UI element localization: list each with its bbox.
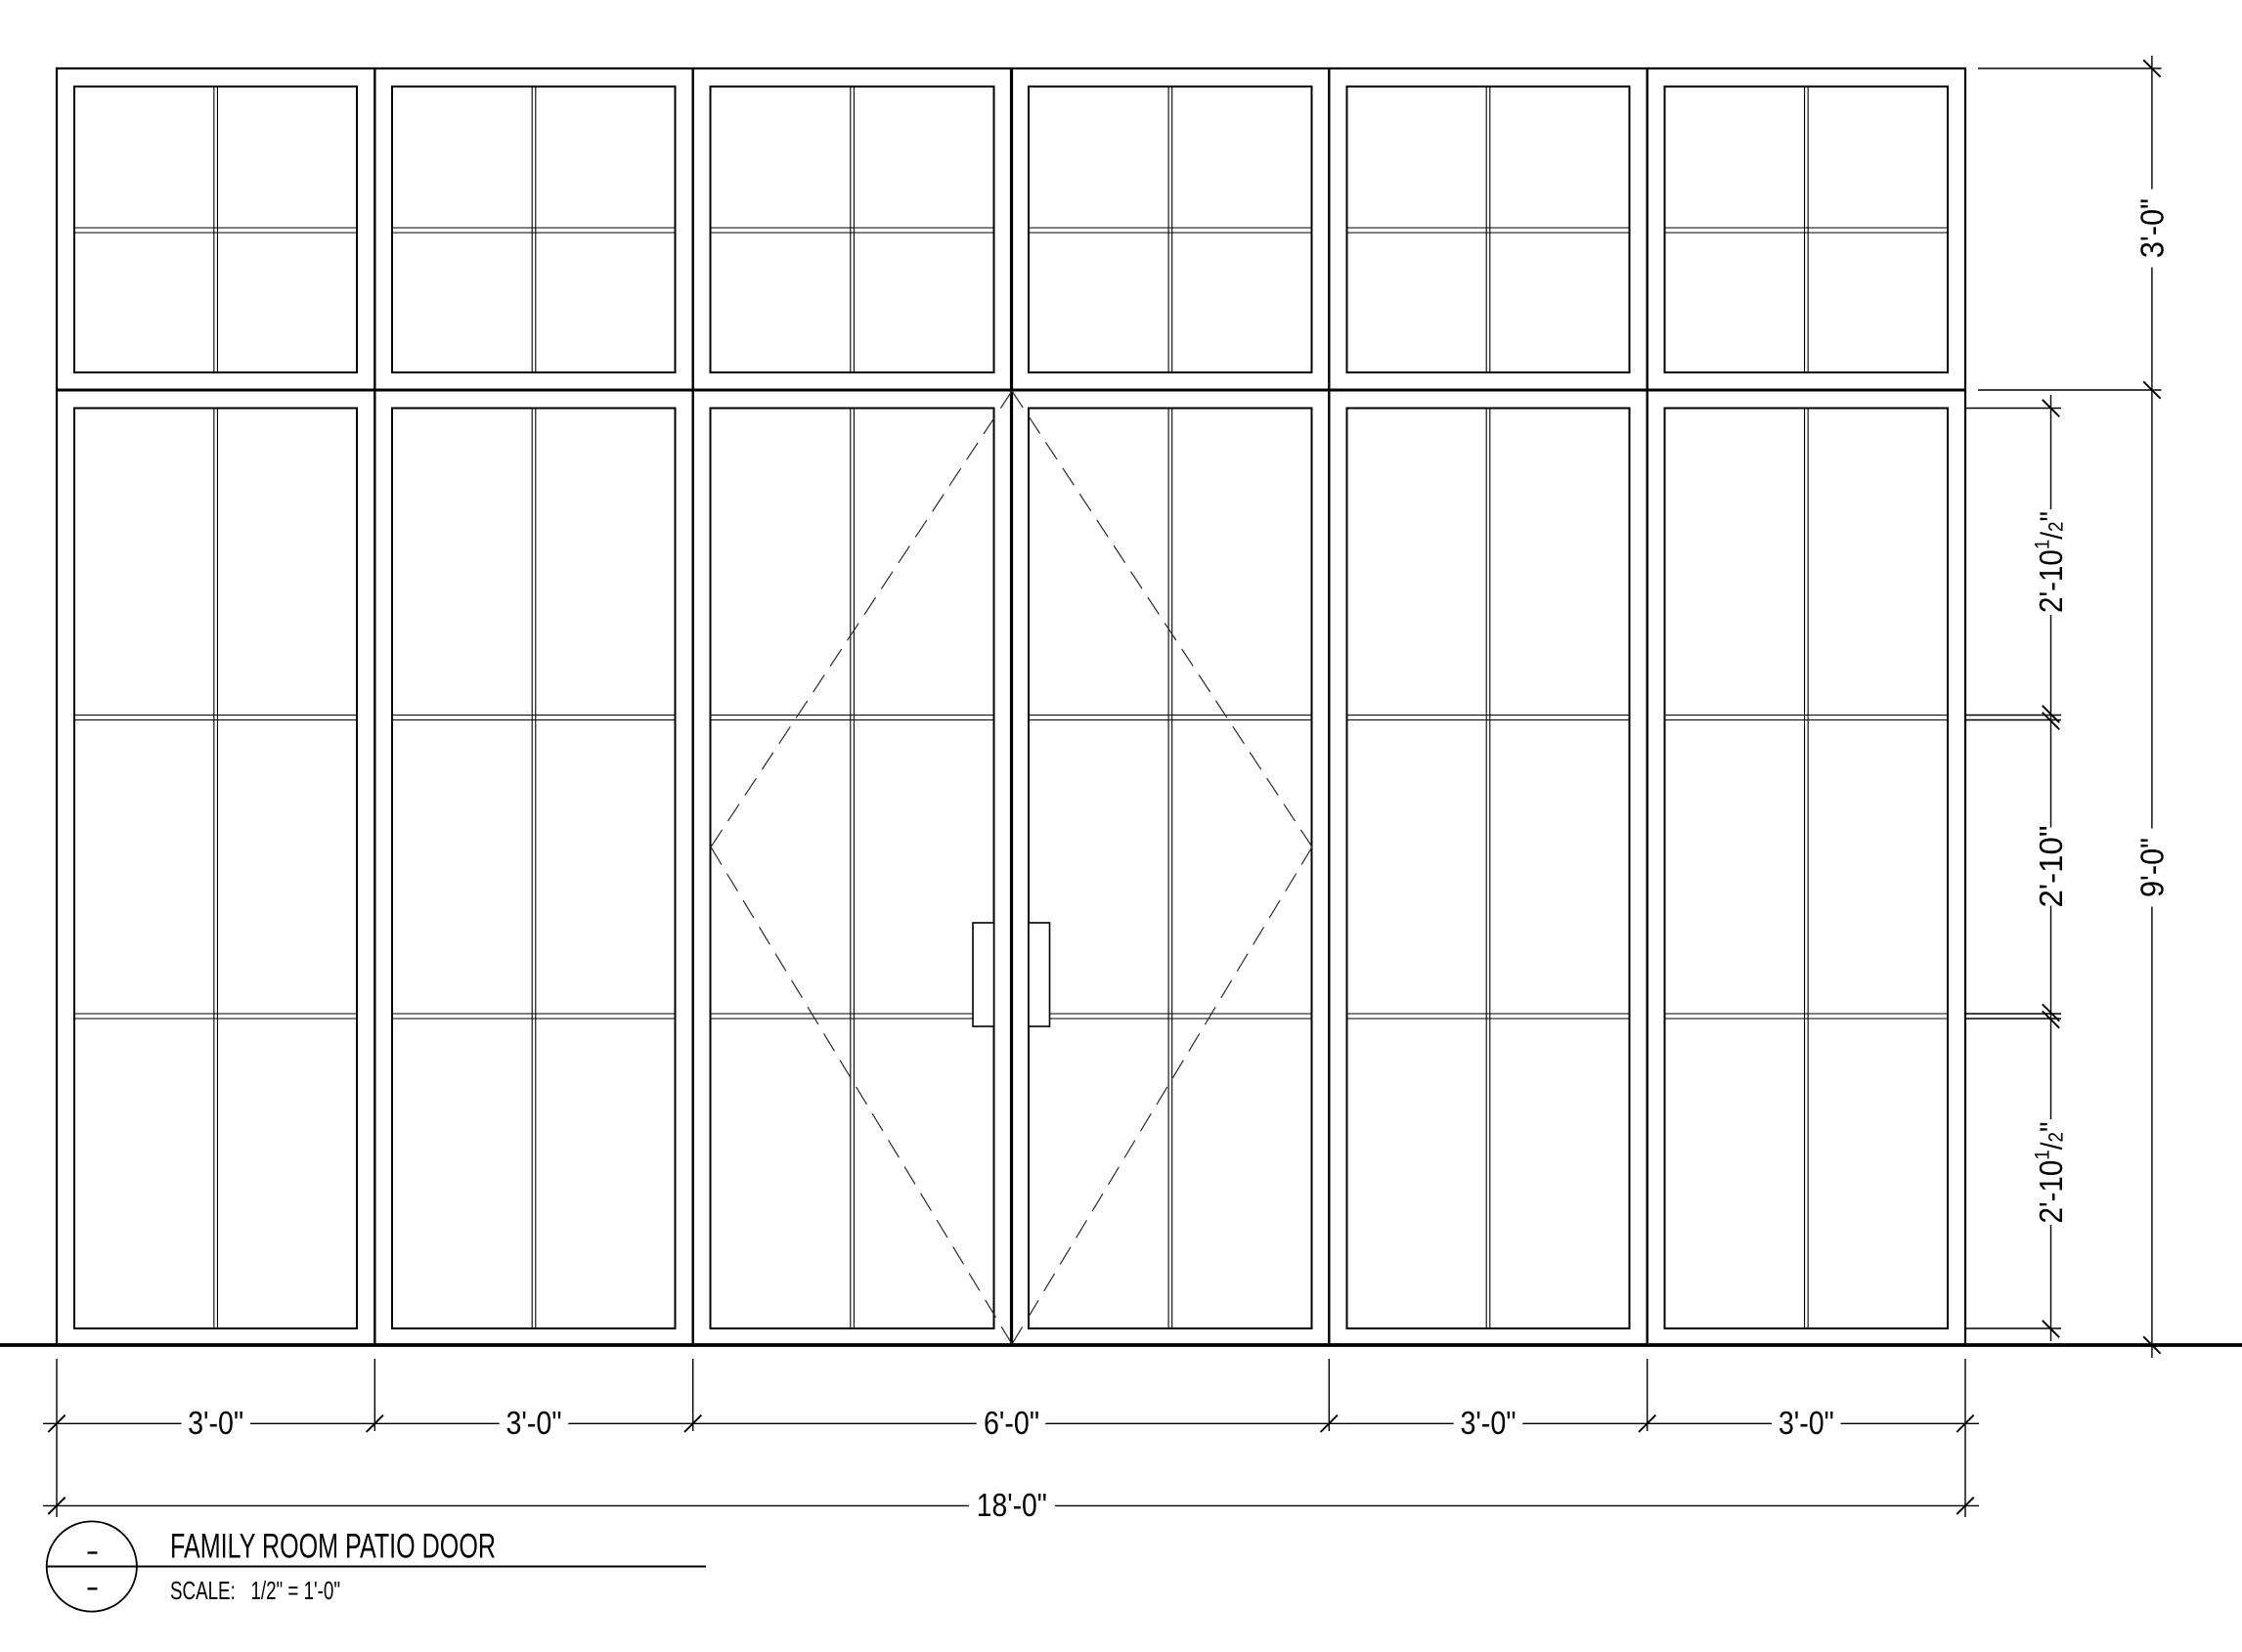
svg-text:3'-0": 3'-0" <box>1779 1405 1834 1441</box>
svg-text:6'-0": 6'-0" <box>984 1405 1039 1441</box>
svg-text:3'-0": 3'-0" <box>506 1405 562 1441</box>
svg-text:FAMILY ROOM PATIO DOOR: FAMILY ROOM PATIO DOOR <box>170 1528 496 1566</box>
svg-text:9'-0": 9'-0" <box>2133 838 2170 897</box>
svg-text:3'-0": 3'-0" <box>188 1405 243 1441</box>
svg-text:2'-10": 2'-10" <box>2033 825 2069 907</box>
svg-text:SCALE: 1/2" = 1'-0": SCALE: 1/2" = 1'-0" <box>170 1576 340 1605</box>
svg-text:3'-0": 3'-0" <box>1461 1405 1517 1441</box>
svg-text:3'-0": 3'-0" <box>2133 198 2170 258</box>
svg-text:18'-0": 18'-0" <box>977 1487 1047 1523</box>
